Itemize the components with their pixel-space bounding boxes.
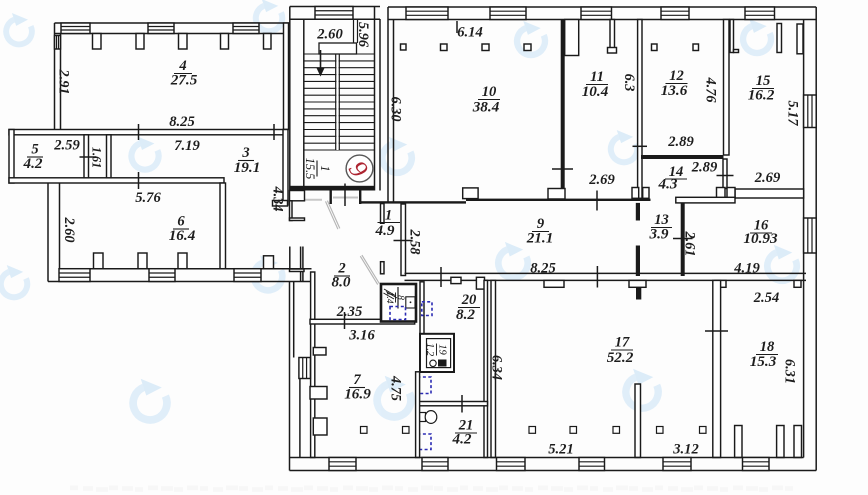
svg-text:6.34: 6.34 xyxy=(488,355,504,380)
svg-text:3.9: 3.9 xyxy=(649,226,669,243)
svg-text:5.96: 5.96 xyxy=(355,22,371,48)
svg-text:2.60: 2.60 xyxy=(61,216,77,242)
svg-text:6.14: 6.14 xyxy=(457,25,483,41)
svg-text:19.1: 19.1 xyxy=(234,159,261,176)
svg-text:21.1: 21.1 xyxy=(526,230,554,247)
svg-text:4.2: 4.2 xyxy=(23,155,43,172)
svg-text:4.2: 4.2 xyxy=(452,431,472,448)
svg-text:1.61: 1.61 xyxy=(90,147,104,168)
svg-text:1.4: 1.4 xyxy=(384,292,394,304)
svg-text:16.9: 16.9 xyxy=(344,386,371,403)
svg-text:2.58: 2.58 xyxy=(406,228,422,254)
svg-text:8.25: 8.25 xyxy=(169,114,195,130)
svg-text:13.6: 13.6 xyxy=(661,82,688,99)
svg-text:1.2: 1.2 xyxy=(424,343,435,357)
svg-text:16.4: 16.4 xyxy=(169,227,196,244)
svg-text:2.91: 2.91 xyxy=(55,68,71,94)
svg-text:4.75: 4.75 xyxy=(387,375,403,401)
svg-text:10.4: 10.4 xyxy=(582,83,609,100)
svg-text:4.19: 4.19 xyxy=(733,261,760,277)
svg-text:7.19: 7.19 xyxy=(174,138,200,154)
svg-text:5.76: 5.76 xyxy=(135,190,161,206)
svg-text:2.89: 2.89 xyxy=(691,160,718,176)
svg-text:8.2: 8.2 xyxy=(456,306,475,323)
svg-text:15.3: 15.3 xyxy=(750,353,777,370)
svg-text:52.2: 52.2 xyxy=(607,349,634,366)
svg-text:6.3: 6.3 xyxy=(621,74,637,92)
svg-text:6.31: 6.31 xyxy=(781,359,797,384)
svg-text:6.30: 6.30 xyxy=(387,96,403,121)
svg-text:2.35: 2.35 xyxy=(336,304,363,320)
svg-text:4.3: 4.3 xyxy=(658,176,678,193)
svg-text:2.59: 2.59 xyxy=(53,138,80,154)
svg-text:15.5: 15.5 xyxy=(303,158,317,180)
svg-text:2.69: 2.69 xyxy=(588,172,615,188)
svg-text:16.2: 16.2 xyxy=(748,87,775,104)
svg-text:2.69: 2.69 xyxy=(754,170,781,186)
svg-text:2.89: 2.89 xyxy=(667,134,694,150)
svg-text:4.76: 4.76 xyxy=(702,76,718,103)
svg-text:27.5: 27.5 xyxy=(170,72,198,89)
svg-text:2.61: 2.61 xyxy=(681,230,697,256)
svg-text:8.0: 8.0 xyxy=(332,274,351,291)
svg-text:5.21: 5.21 xyxy=(548,442,574,458)
svg-text:38.4: 38.4 xyxy=(472,99,500,116)
svg-text:8.25: 8.25 xyxy=(530,261,556,277)
svg-text:8: 8 xyxy=(395,295,405,300)
svg-text:1: 1 xyxy=(318,165,332,171)
svg-text:10.93: 10.93 xyxy=(743,230,778,247)
svg-text:5.17: 5.17 xyxy=(784,100,800,126)
svg-text:4.9: 4.9 xyxy=(375,222,395,239)
svg-text:2.54: 2.54 xyxy=(753,290,780,306)
svg-text:3.16: 3.16 xyxy=(348,328,375,344)
svg-text:19: 19 xyxy=(437,344,448,355)
svg-text:3.12: 3.12 xyxy=(672,442,699,458)
svg-text:2.60: 2.60 xyxy=(316,27,343,43)
svg-text:4.34: 4.34 xyxy=(269,185,285,211)
